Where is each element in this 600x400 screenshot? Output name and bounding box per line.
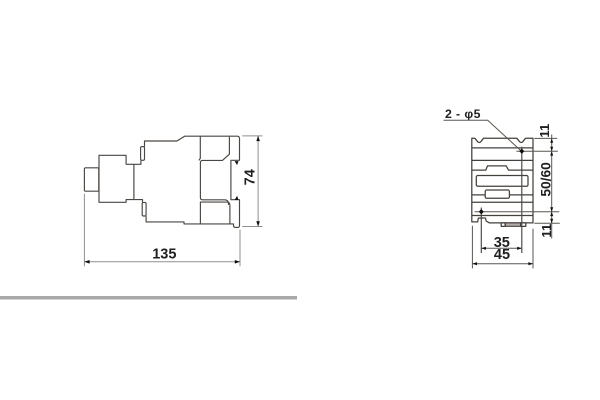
svg-text:2 - φ5: 2 - φ5 bbox=[445, 107, 481, 121]
svg-text:135: 135 bbox=[152, 247, 176, 263]
svg-text:11: 11 bbox=[539, 224, 554, 238]
svg-text:74: 74 bbox=[243, 169, 259, 185]
svg-text:11: 11 bbox=[537, 124, 552, 138]
svg-text:50/60: 50/60 bbox=[538, 162, 553, 197]
svg-text:45: 45 bbox=[494, 247, 510, 263]
